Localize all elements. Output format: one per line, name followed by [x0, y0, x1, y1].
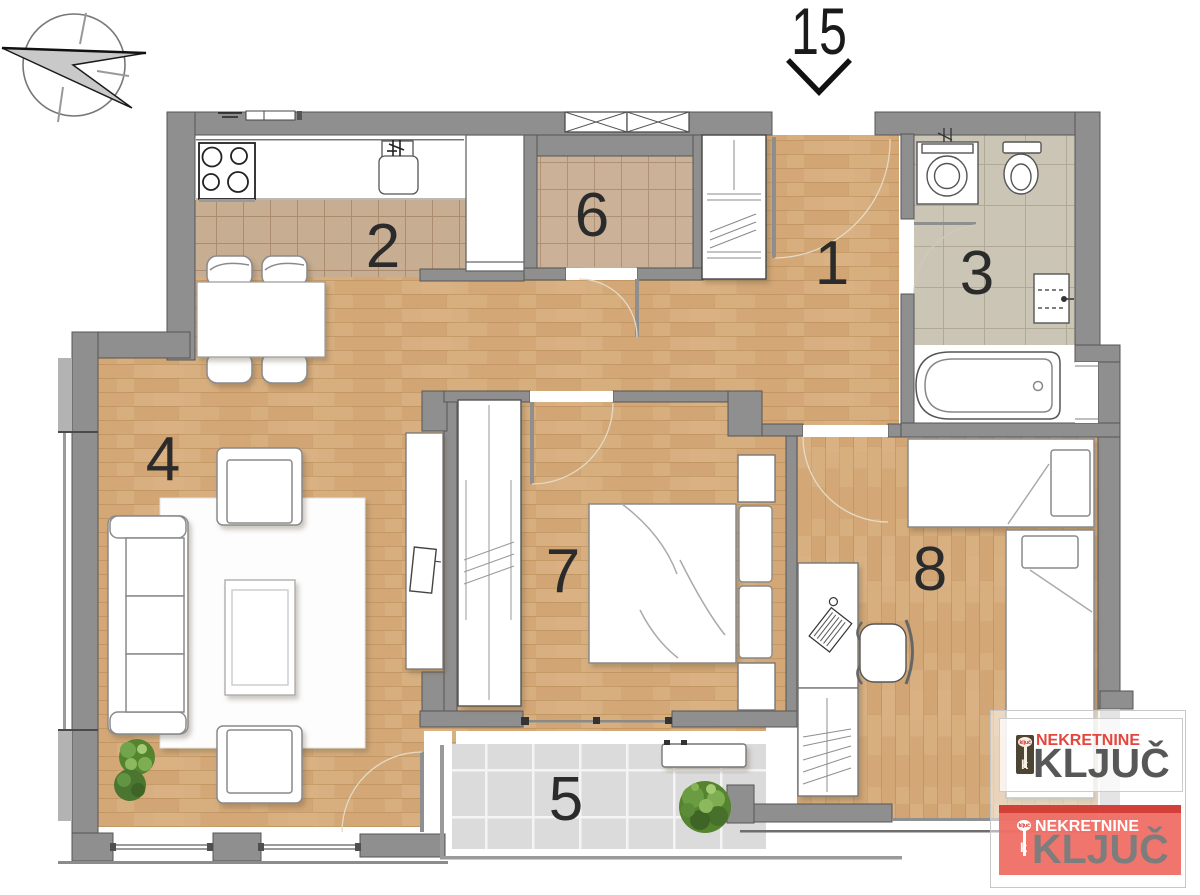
svg-text:15: 15: [791, 0, 847, 68]
svg-text:1: 1: [815, 229, 849, 298]
svg-text:8: 8: [913, 535, 947, 604]
svg-text:5: 5: [549, 765, 583, 834]
svg-text:7: 7: [546, 537, 580, 606]
svg-text:4: 4: [146, 425, 180, 494]
svg-text:3: 3: [960, 239, 994, 308]
svg-text:2: 2: [366, 212, 400, 281]
svg-text:6: 6: [575, 181, 609, 250]
